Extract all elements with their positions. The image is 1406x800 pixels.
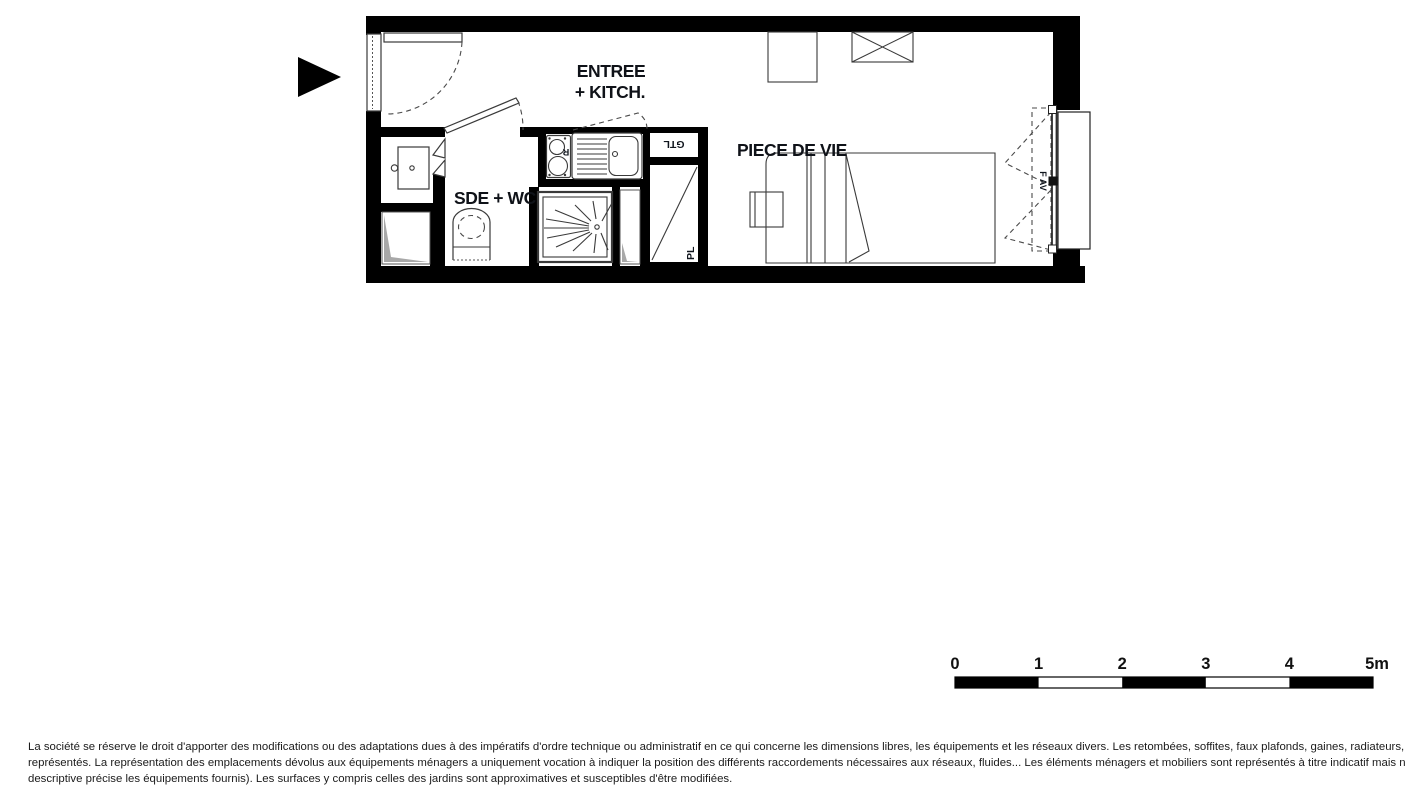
entrance-door <box>367 33 462 114</box>
balcony-slab <box>1058 112 1090 249</box>
wall-left-stub <box>366 16 381 35</box>
bed-blanket-fold <box>846 154 869 262</box>
shower-drain <box>595 225 599 229</box>
wall-shower-right <box>612 187 620 266</box>
room-label-bathroom: SDE + WC <box>454 188 537 208</box>
duct-shaft-left <box>382 212 430 264</box>
sink-unit <box>572 133 642 179</box>
room-label-entry-line2: + KITCH. <box>575 82 645 102</box>
disclaimer-line-3: descriptive précise les équipements four… <box>28 771 1406 787</box>
scale-tick-2: 2 <box>1118 655 1127 673</box>
toilet-bowl <box>453 209 490 261</box>
entrance-arrow-icon <box>298 57 341 97</box>
table <box>768 32 817 82</box>
bifold-door-panel-1 <box>433 139 445 158</box>
wall-top <box>366 16 1080 32</box>
shower-tray-outer <box>538 192 612 262</box>
window-frame-node <box>1049 177 1058 186</box>
room-label-living: PIECE DE VIE <box>737 140 847 160</box>
kitchen-counter: R <box>546 113 647 179</box>
wardrobe-crossed <box>852 32 913 62</box>
wall-bathroom-vertical <box>433 173 445 212</box>
bifold-door-panel-2 <box>433 160 445 177</box>
entrance-door-frame <box>367 34 381 111</box>
entrance-door-swing-arc <box>386 42 462 114</box>
scale-tick-0: 0 <box>950 655 959 673</box>
hob-dot <box>548 137 550 139</box>
scale-segment-black <box>955 677 1039 688</box>
shower-spray-lines <box>544 201 612 253</box>
scale-tick-3: 3 <box>1201 655 1210 673</box>
shower <box>538 192 612 262</box>
wall-bottom <box>366 266 1085 283</box>
hob-dot <box>564 174 566 176</box>
entrance-door-leaf <box>384 33 462 42</box>
scale-tick-1: 1 <box>1034 655 1043 673</box>
hob-dot <box>548 174 550 176</box>
bed <box>766 153 995 263</box>
gtl-and-closet: GTL PL <box>650 133 698 262</box>
wall-shaft-right <box>430 212 445 266</box>
gtl-label: GTL <box>663 138 685 150</box>
window-label: F AV <box>1038 171 1048 191</box>
window-frame-node <box>1049 245 1057 253</box>
floor-plan-canvas: R GTL PL <box>0 0 1406 800</box>
bathroom-door-leaf <box>444 98 519 133</box>
bed-outline <box>766 153 995 263</box>
disclaimer-line-2: représentés. La représentation des empla… <box>28 755 1406 771</box>
wall-left <box>366 111 381 283</box>
duct-shaft-right <box>620 190 640 264</box>
room-label-entry-line1: ENTREE <box>577 61 646 81</box>
wall-bathroom-top <box>381 127 445 137</box>
scale-segment-black <box>1122 677 1206 688</box>
window-frame-node <box>1049 106 1057 114</box>
scale-tick-4: 4 <box>1285 655 1295 673</box>
hob-dot <box>564 137 566 139</box>
window-right: F AV <box>1005 106 1090 254</box>
fridge-mark-label: R <box>562 147 569 157</box>
closet-label: PL <box>685 246 697 260</box>
scale-segment-black <box>1289 677 1373 688</box>
kitchen-sink <box>572 133 642 179</box>
bathroom-door-swing-arc <box>518 101 523 130</box>
floor-plan-page: R GTL PL <box>0 0 1406 800</box>
wall-right-bottom <box>1053 249 1080 283</box>
disclaimer-line-1: La société se réserve le droit d'apporte… <box>28 739 1406 755</box>
scale-end-label: 5m <box>1365 655 1389 673</box>
vanity-cabinet <box>398 147 429 189</box>
disclaimer: La société se réserve le droit d'apporte… <box>28 739 1406 787</box>
shower-tray-inner <box>543 197 607 257</box>
bathroom-door <box>444 98 523 133</box>
wall-vanity-bottom <box>381 203 433 212</box>
hob: R <box>547 136 571 178</box>
wall-right-top <box>1053 32 1080 110</box>
scale-bar: 0 1 2 3 4 5m <box>950 655 1389 688</box>
vanity-knob <box>391 165 397 171</box>
toilet <box>453 209 490 261</box>
